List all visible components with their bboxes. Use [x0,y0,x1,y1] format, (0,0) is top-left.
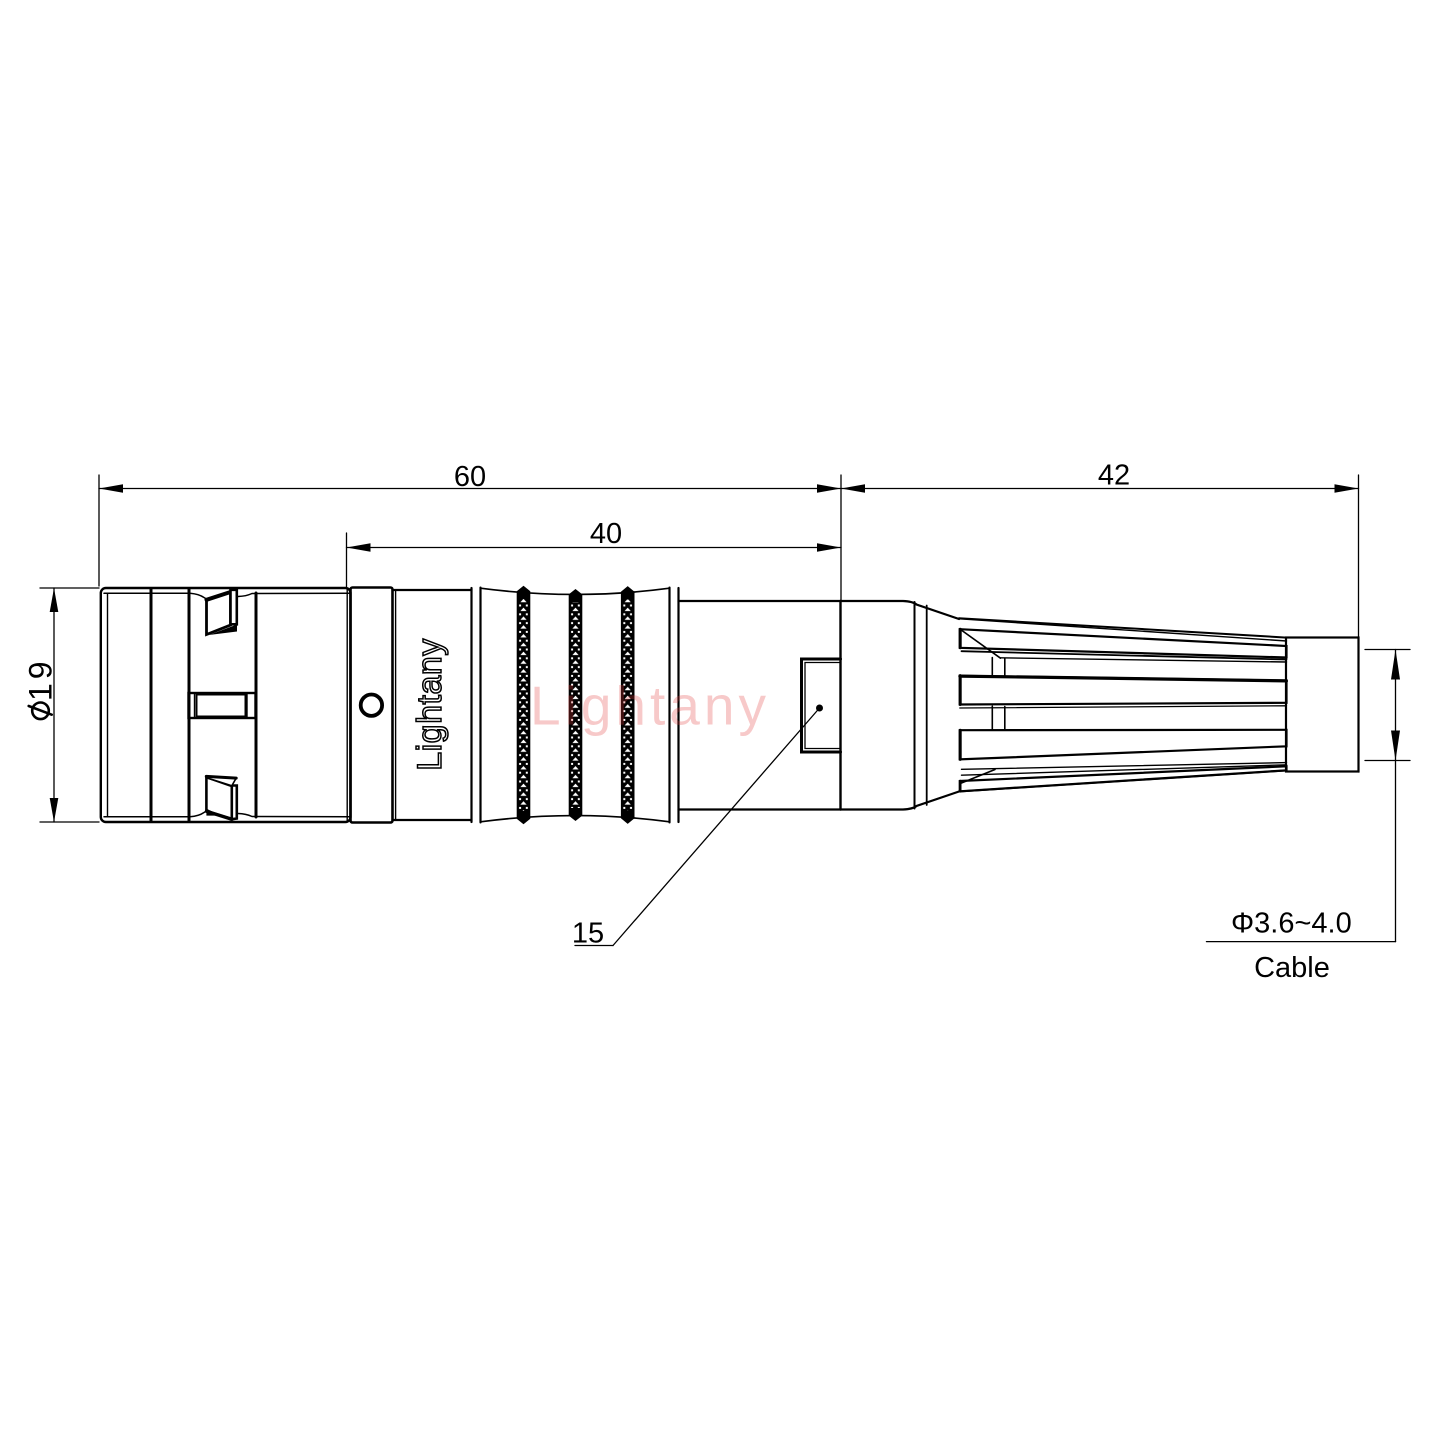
svg-text:Φ3.6~4.0: Φ3.6~4.0 [1231,908,1352,940]
svg-text:Lightany: Lightany [411,638,449,771]
svg-text:42: 42 [1098,460,1130,492]
svg-text:Cable: Cable [1254,952,1330,984]
svg-text:60: 60 [454,461,486,493]
svg-text:40: 40 [590,518,622,550]
svg-text:Lightany: Lightany [530,675,770,737]
svg-text:15: 15 [572,918,604,950]
svg-text:19: 19 [23,657,59,701]
